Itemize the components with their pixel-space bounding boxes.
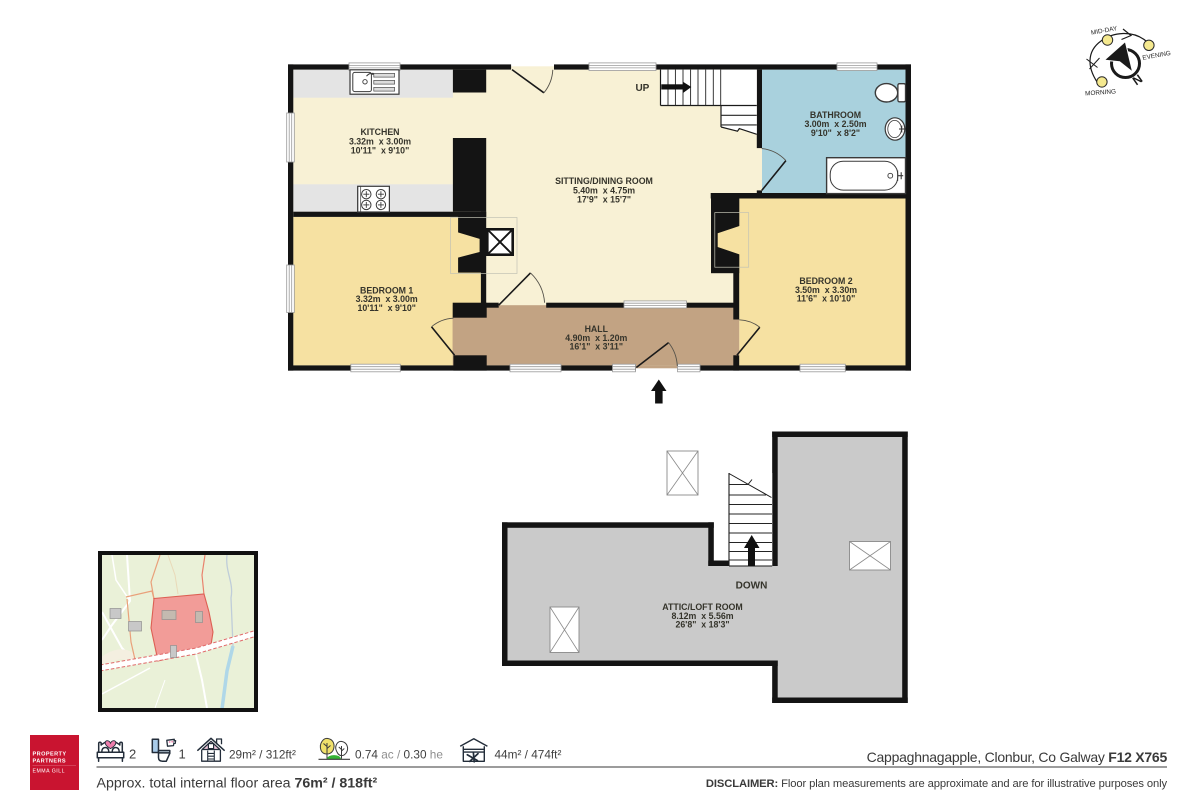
svg-text:DOWN: DOWN (736, 580, 768, 591)
svg-text:29m² / 312ft²: 29m² / 312ft² (229, 747, 296, 761)
svg-text:44m² / 474ft²: 44m² / 474ft² (495, 747, 562, 761)
svg-text:Approx. total internal floor a: Approx. total internal floor area 76m² /… (97, 776, 378, 792)
svg-text:16'1" x 3'11": 16'1" x 3'11" (569, 342, 623, 352)
svg-text:EMMA GILL: EMMA GILL (33, 768, 65, 774)
svg-text:UP: UP (635, 83, 649, 94)
svg-text:17'9" x 15'7": 17'9" x 15'7" (577, 194, 631, 204)
svg-text:26'8" x 18'3": 26'8" x 18'3" (675, 620, 729, 630)
svg-text:0.74 ac / 0.30 he: 0.74 ac / 0.30 he (355, 747, 443, 761)
svg-text:PROPERTY: PROPERTY (33, 752, 67, 758)
svg-text:10'11" x 9'10": 10'11" x 9'10" (357, 303, 416, 313)
svg-text:N: N (1130, 72, 1145, 89)
svg-text:MORNING: MORNING (1085, 88, 1116, 97)
svg-text:PARTNERS: PARTNERS (33, 758, 67, 764)
svg-text:1: 1 (179, 746, 186, 761)
svg-text:2: 2 (129, 746, 136, 761)
svg-text:10'11" x 9'10": 10'11" x 9'10" (351, 145, 410, 155)
svg-text:11'6" x 10'10": 11'6" x 10'10" (797, 294, 856, 304)
svg-text:Cappaghnagapple, Clonbur, Co G: Cappaghnagapple, Clonbur, Co Galway F12 … (867, 749, 1168, 765)
svg-text:9'10" x 8'2": 9'10" x 8'2" (811, 128, 860, 138)
svg-text:DISCLAIMER: Floor plan measure: DISCLAIMER: Floor plan measurements are … (706, 778, 1168, 790)
svg-text:EVENING: EVENING (1142, 50, 1172, 62)
